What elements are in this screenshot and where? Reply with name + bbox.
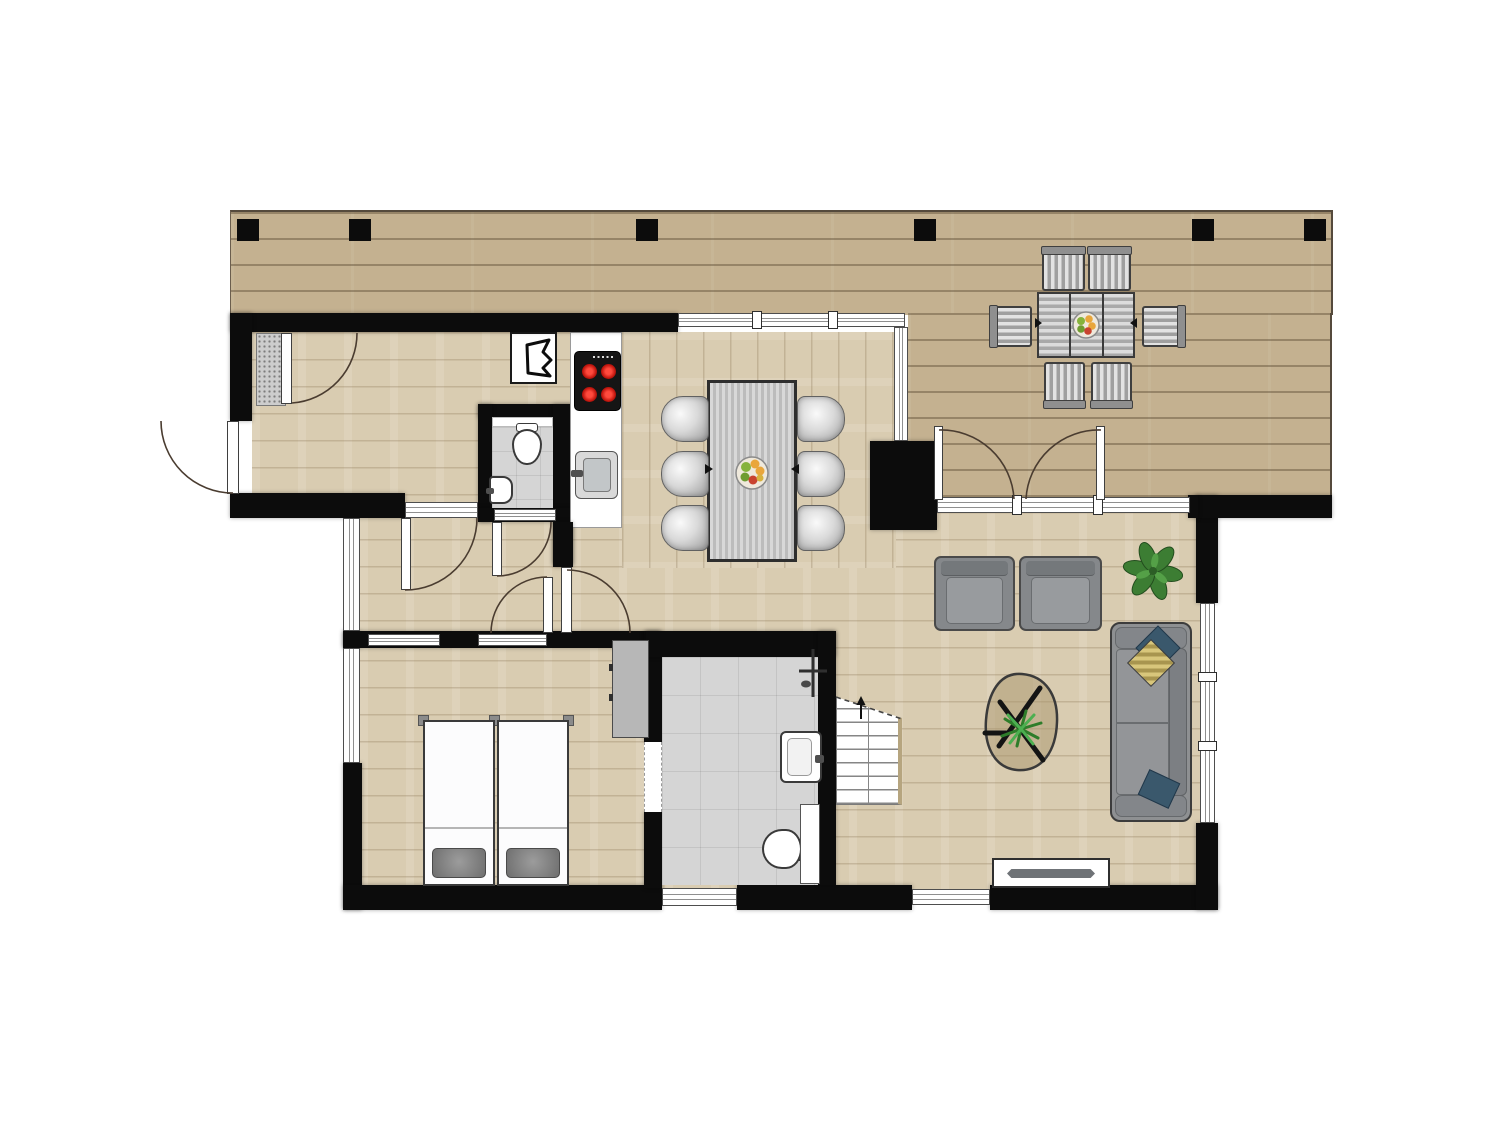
dining-table bbox=[707, 380, 797, 562]
single-bed-left bbox=[423, 720, 495, 886]
chair-back-rail bbox=[1177, 305, 1186, 348]
window-living-east bbox=[1200, 603, 1215, 823]
bathroom-sink bbox=[780, 731, 822, 783]
deck-post bbox=[636, 219, 658, 241]
toilet-wall-left bbox=[478, 404, 492, 522]
wall-northeast bbox=[1196, 495, 1332, 518]
wall-left-upper bbox=[230, 313, 252, 421]
sink-basin bbox=[787, 738, 812, 776]
window-mullion bbox=[752, 311, 762, 329]
outdoor-chair bbox=[1044, 362, 1085, 406]
chair-back-rail bbox=[1090, 400, 1133, 409]
front-door-leaf bbox=[227, 421, 239, 494]
sink-tap bbox=[571, 470, 583, 477]
entry-inner-door-leaf bbox=[281, 333, 292, 404]
toilet-door-leaf bbox=[492, 522, 502, 576]
outdoor-dining-table bbox=[1037, 292, 1135, 358]
dining-chair bbox=[797, 396, 845, 442]
outdoor-chair bbox=[1042, 249, 1085, 291]
burner bbox=[601, 364, 616, 379]
window-mullion bbox=[1012, 495, 1022, 515]
burner bbox=[601, 387, 616, 402]
armchair bbox=[1019, 556, 1102, 631]
hall-door-opening bbox=[405, 502, 478, 518]
window-dining-north bbox=[678, 313, 905, 327]
front-door-arc bbox=[161, 421, 233, 493]
wall-bathroom-top bbox=[646, 631, 836, 657]
deck-terrace-top bbox=[230, 210, 1333, 315]
deck-post bbox=[1192, 219, 1214, 241]
cooktop bbox=[574, 351, 621, 411]
deck-post bbox=[1304, 219, 1326, 241]
burner bbox=[582, 387, 597, 402]
wall-bottom-3 bbox=[990, 885, 1218, 910]
window-west-corridor bbox=[343, 518, 360, 631]
french-door-leaf-left bbox=[934, 426, 943, 500]
wall-corridor-east-stub bbox=[553, 522, 573, 567]
dining-chair bbox=[797, 505, 845, 551]
bathroom-door-leaf bbox=[800, 804, 820, 884]
window-mullion bbox=[1198, 672, 1217, 682]
duvet-fold bbox=[425, 827, 493, 829]
toilet-hand-basin bbox=[489, 476, 513, 504]
wall-east-lower bbox=[1196, 823, 1218, 910]
armchair-seat bbox=[946, 577, 1003, 624]
window-living-north bbox=[937, 497, 1190, 513]
dining-chair bbox=[797, 451, 845, 497]
outdoor-chair bbox=[1142, 306, 1183, 347]
window-mullion bbox=[1198, 741, 1217, 751]
deck-post bbox=[237, 219, 259, 241]
window-west-bedroom bbox=[343, 648, 360, 763]
french-door-leaf-right bbox=[1096, 426, 1105, 500]
radiator bbox=[992, 858, 1110, 888]
armchair bbox=[934, 556, 1015, 631]
sink-basin bbox=[583, 458, 611, 492]
dining-chair bbox=[661, 451, 709, 497]
boiler-unit bbox=[510, 332, 557, 384]
wall-bottom-1 bbox=[343, 885, 662, 910]
window-mullion bbox=[828, 311, 838, 329]
window-south-living bbox=[912, 889, 990, 905]
deck-post bbox=[349, 219, 371, 241]
burner bbox=[582, 364, 597, 379]
window-south-bathroom bbox=[662, 888, 737, 906]
floor-plan-canvas bbox=[0, 0, 1500, 1125]
outdoor-table-divider bbox=[1069, 294, 1071, 356]
bedroom-door-leaf bbox=[543, 577, 553, 633]
outdoor-chair bbox=[992, 306, 1032, 347]
dining-chair bbox=[661, 396, 709, 442]
armchair-back bbox=[941, 561, 1008, 576]
hall-corridor-door-leaf bbox=[401, 518, 411, 590]
outdoor-chair bbox=[1091, 362, 1132, 406]
outdoor-table-divider bbox=[1102, 294, 1104, 356]
toilet-door-opening bbox=[494, 509, 556, 521]
kitchen-sink bbox=[575, 451, 618, 499]
chair-back-rail bbox=[1041, 246, 1086, 255]
outdoor-chair bbox=[1088, 249, 1131, 291]
wall-hall-bottom bbox=[230, 493, 405, 518]
sofa-back bbox=[1169, 648, 1187, 796]
corridor-floor bbox=[360, 512, 573, 633]
corridor-living-door-leaf bbox=[561, 567, 572, 633]
wardrobe bbox=[612, 640, 649, 738]
deck-post bbox=[914, 219, 936, 241]
bathroom-door-opening bbox=[644, 742, 662, 812]
wall-bedroom-east-lower bbox=[644, 812, 662, 888]
bedroom-door-opening bbox=[478, 634, 547, 646]
wall-bottom-2 bbox=[737, 885, 912, 910]
chair-back-rail bbox=[1043, 400, 1086, 409]
chair-back-rail bbox=[1087, 246, 1132, 255]
armchair-back bbox=[1026, 561, 1095, 576]
window-dining-east bbox=[894, 327, 908, 441]
single-bed-right bbox=[497, 720, 569, 886]
dining-chair bbox=[661, 505, 709, 551]
bed-pillow bbox=[432, 848, 486, 878]
chair-back-rail bbox=[989, 305, 998, 348]
duvet-fold bbox=[499, 827, 567, 829]
chimney-block bbox=[870, 441, 937, 530]
basin-tap bbox=[486, 488, 494, 494]
bathroom-toilet-bowl bbox=[762, 829, 802, 869]
interior-window-corridor-bedroom bbox=[368, 634, 440, 646]
sink-tap bbox=[815, 755, 824, 763]
bed-pillow bbox=[506, 848, 560, 878]
armchair-seat bbox=[1031, 577, 1090, 624]
wall-top bbox=[230, 313, 678, 332]
radiator-vent bbox=[1007, 869, 1095, 878]
